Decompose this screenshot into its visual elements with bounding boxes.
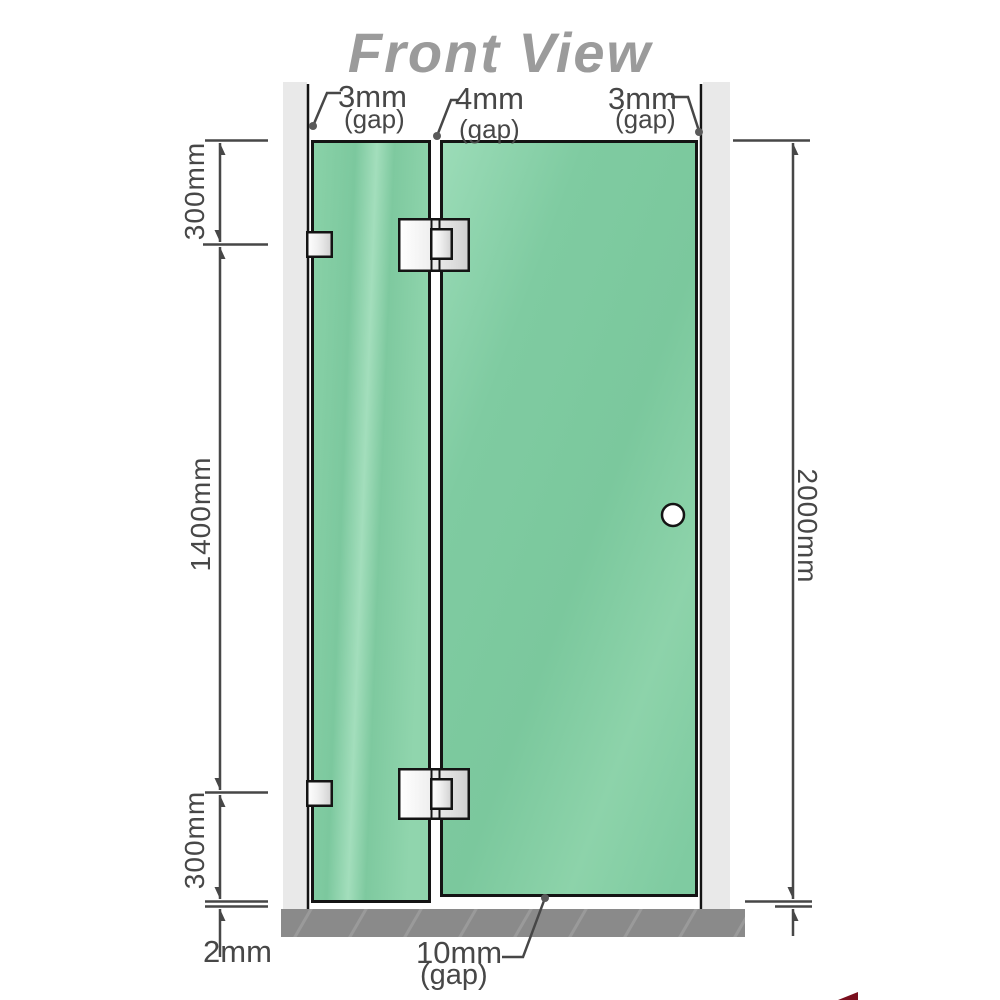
top-wall-bracket xyxy=(307,232,332,257)
right-wall xyxy=(701,82,730,910)
height-middle-segment-label: 1400mm xyxy=(187,457,215,572)
door-glass-panel xyxy=(442,142,697,896)
gap-middle-value: 4mm xyxy=(455,83,524,114)
diagram-graphics xyxy=(0,0,1000,1000)
height-top-segment-label: 300mm xyxy=(181,142,209,240)
front-view-diagram: Front View 3mm (gap) 4mm (gap) 3mm (gap)… xyxy=(0,0,1000,1000)
page-title: Front View xyxy=(0,20,1000,85)
gap-middle-label: (gap) xyxy=(459,116,520,142)
top-hinge xyxy=(399,219,469,271)
floor-clearance-label: 2mm xyxy=(203,936,272,967)
gap-right-label: (gap) xyxy=(615,106,676,132)
height-bottom-segment-label: 300mm xyxy=(181,791,209,889)
door-bottom-gap-label: (gap) xyxy=(420,961,488,990)
bottom-hinge xyxy=(399,769,469,819)
bottom-wall-bracket xyxy=(307,781,332,806)
door-handle-knob xyxy=(662,504,684,526)
left-wall xyxy=(283,82,308,910)
total-height-label: 2000mm xyxy=(793,469,821,584)
gap-left-label: (gap) xyxy=(344,106,405,132)
logo-corner-sliver xyxy=(838,992,858,1000)
floor-base xyxy=(281,904,754,942)
